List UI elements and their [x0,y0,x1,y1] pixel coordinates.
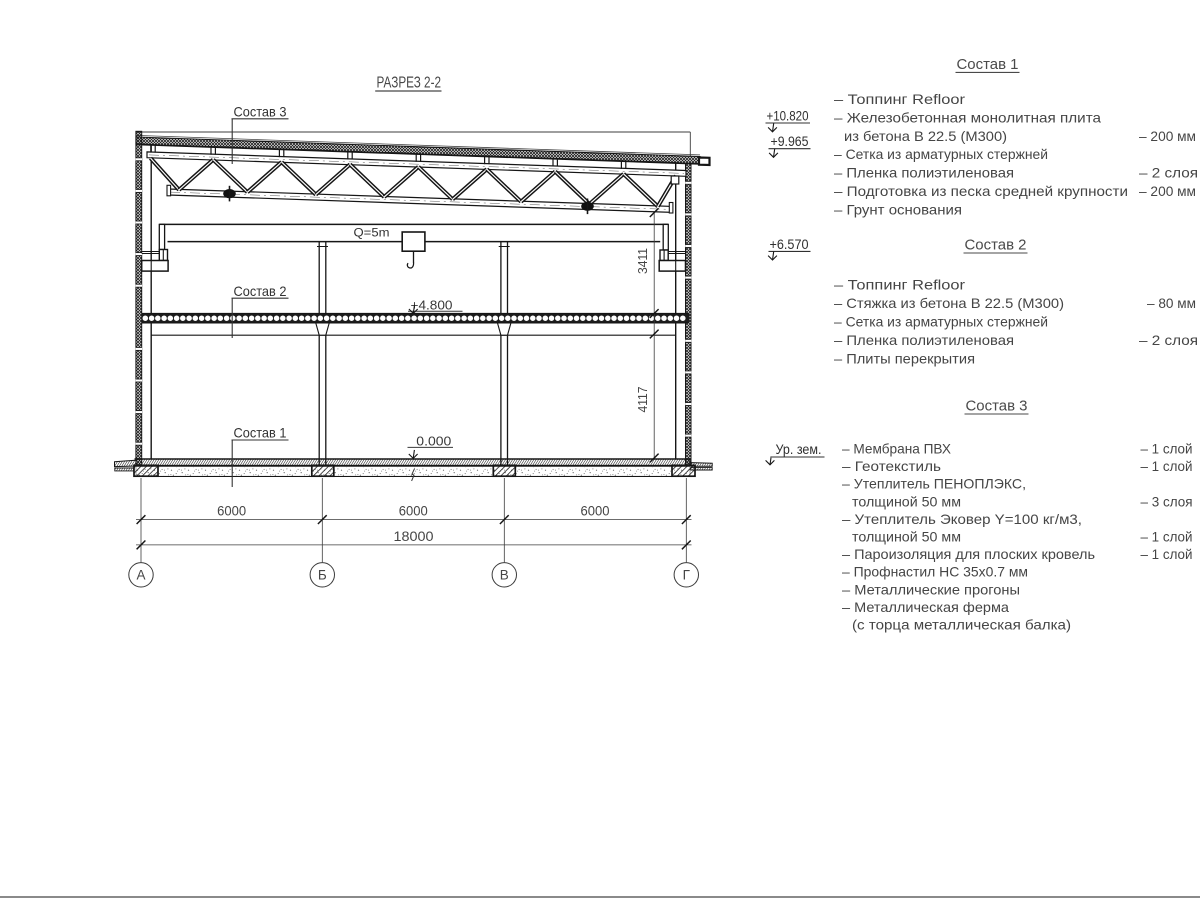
svg-text:– Пленка полиэтиленовая: – Пленка полиэтиленовая [834,333,1014,348]
svg-text:– Подготовка из песка средней: – Подготовка из песка средней крупности [834,184,1128,199]
svg-text:18000: 18000 [394,529,434,544]
svg-text:6000: 6000 [399,503,428,518]
svg-text:толщиной 50 мм: толщиной 50 мм [852,530,961,545]
svg-text:– Утеплитель Эковер Y=100 кг/м: – Утеплитель Эковер Y=100 кг/м3, [842,512,1082,527]
svg-text:– 3 слоя: – 3 слоя [1141,494,1193,509]
svg-text:– Грунт основания: – Грунт основания [834,202,962,217]
svg-text:– Мембрана ПВХ: – Мембрана ПВХ [842,442,951,457]
svg-text:– 1 слой: – 1 слой [1141,442,1193,457]
svg-text:3411: 3411 [635,248,650,274]
svg-text:(с торца металлическая балка): (с торца металлическая балка) [852,618,1071,633]
svg-text:– 1 слой: – 1 слой [1141,547,1193,562]
svg-text:6000: 6000 [581,503,610,518]
svg-text:Состав 2: Состав 2 [965,237,1027,254]
svg-text:РАЗРЕЗ 2-2: РАЗРЕЗ 2-2 [377,75,442,92]
svg-text:4117: 4117 [635,387,650,413]
svg-text:– 80 мм: – 80 мм [1147,296,1196,311]
svg-text:Б: Б [318,567,327,582]
svg-text:Ур. зем.: Ур. зем. [776,442,822,457]
svg-text:Состав 3: Состав 3 [234,103,287,119]
svg-text:– Профнастил НС 35х0.7 мм: – Профнастил НС 35х0.7 мм [842,565,1028,580]
svg-text:+10.820: +10.820 [767,108,809,123]
svg-text:– Стяжка из бетона В 22.5 (М30: – Стяжка из бетона В 22.5 (М300) [834,296,1064,311]
svg-text:– Металлические прогоны: – Металлические прогоны [842,582,1020,597]
svg-text:из бетона В 22.5 (М300): из бетона В 22.5 (М300) [844,129,1007,144]
svg-text:– 1 слой: – 1 слой [1141,459,1193,474]
svg-text:Г: Г [683,567,691,582]
svg-text:– 2 слоя: – 2 слоя [1139,333,1198,348]
svg-text:– Геотекстиль: – Геотекстиль [842,459,941,474]
svg-text:6000: 6000 [217,503,246,518]
svg-text:– Сетка из арматурных стержней: – Сетка из арматурных стержней [834,147,1048,162]
svg-text:– Топпинг Refloor: – Топпинг Refloor [834,92,966,107]
svg-text:В: В [500,567,509,582]
svg-text:– Железобетонная монолитная п: – Железобетонная монолитная плита [834,110,1101,125]
svg-text:– Сетка из арматурных стержней: – Сетка из арматурных стержней [834,315,1048,330]
svg-text:– 200 мм: – 200 мм [1139,184,1196,199]
svg-text:– Плиты перекрытия: – Плиты перекрытия [834,352,975,367]
svg-text:Состав 1: Состав 1 [234,425,287,441]
svg-text:Состав 2: Состав 2 [234,283,287,299]
svg-text:– Пленка полиэтиленовая: – Пленка полиэтиленовая [834,166,1014,181]
svg-text:– Металлическая ферма: – Металлическая ферма [842,600,1009,615]
svg-text:– 200 мм: – 200 мм [1139,129,1196,144]
svg-text:0.000: 0.000 [416,434,451,449]
svg-text:– Пароизоляция для плоских кро: – Пароизоляция для плоских кровель [842,547,1095,562]
svg-text:А: А [136,567,145,582]
svg-text:Состав 1: Состав 1 [957,56,1019,73]
svg-text:+6.570: +6.570 [770,237,809,252]
svg-text:Состав 3: Состав 3 [966,398,1028,415]
svg-text:– Утеплитель ПЕНОПЛЭКС,: – Утеплитель ПЕНОПЛЭКС, [842,477,1026,492]
svg-text:Q=5m: Q=5m [354,226,390,240]
svg-text:– 1 слой: – 1 слой [1141,530,1193,545]
svg-text:– Топпинг Refloor: – Топпинг Refloor [834,278,966,293]
svg-text:+9.965: +9.965 [771,134,809,149]
svg-text:толщиной 50 мм: толщиной 50 мм [852,494,961,509]
svg-text:– 2 слоя: – 2 слоя [1139,166,1198,181]
